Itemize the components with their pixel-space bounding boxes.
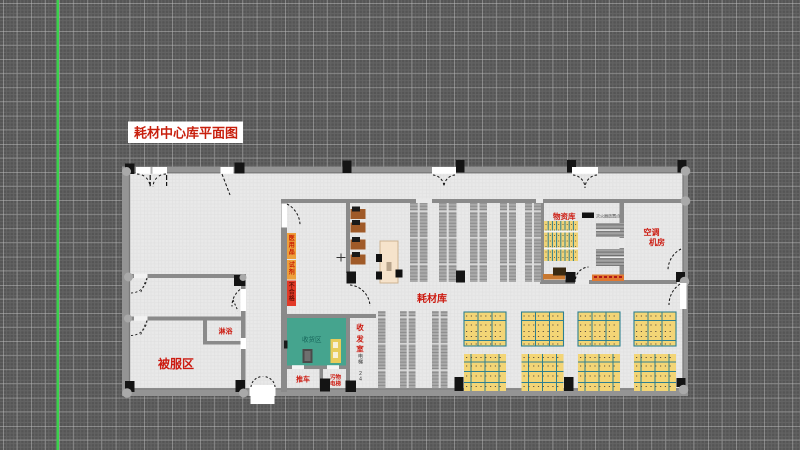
svg-text:电梯: 电梯 [330, 380, 342, 388]
svg-text:收货区: 收货区 [302, 335, 322, 344]
svg-text:4: 4 [359, 377, 362, 383]
svg-text:耗材库: 耗材库 [417, 292, 447, 305]
svg-text:机房: 机房 [649, 237, 665, 247]
svg-text:剂: 剂 [288, 268, 295, 276]
svg-text:用: 用 [288, 242, 295, 249]
svg-text:被服区: 被服区 [158, 356, 194, 371]
svg-text:耗材中心库平面图: 耗材中心库平面图 [134, 126, 238, 141]
svg-text:发: 发 [355, 334, 364, 344]
svg-text:品: 品 [289, 248, 295, 256]
svg-text:室: 室 [356, 344, 364, 354]
svg-text:格: 格 [289, 295, 296, 303]
svg-text:淋浴: 淋浴 [219, 327, 234, 336]
svg-text:灭火器放置点: 灭火器放置点 [596, 213, 620, 220]
svg-text:梯: 梯 [358, 359, 363, 366]
svg-text:空调: 空调 [644, 227, 660, 237]
svg-text:污物: 污物 [330, 373, 342, 381]
svg-text:试: 试 [289, 261, 295, 269]
svg-text:合: 合 [289, 288, 296, 296]
svg-text:物资库: 物资库 [553, 211, 576, 221]
svg-text:不: 不 [289, 283, 295, 290]
svg-text:推车: 推车 [296, 375, 310, 384]
svg-text:医: 医 [289, 234, 295, 242]
svg-text:收: 收 [356, 322, 364, 332]
